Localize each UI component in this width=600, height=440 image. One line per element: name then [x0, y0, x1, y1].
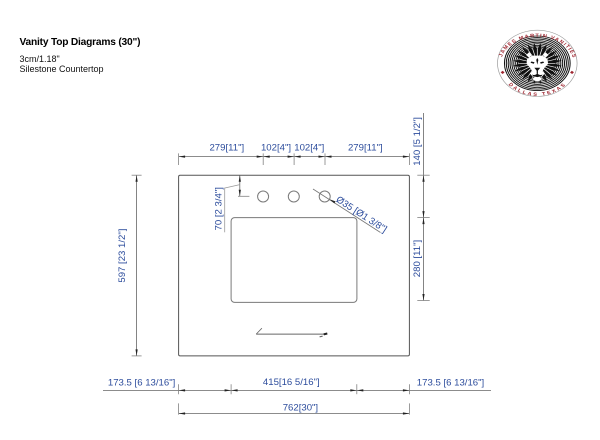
svg-text:762[30"]: 762[30"]	[283, 403, 318, 414]
svg-text:70 [2 3/4"]: 70 [2 3/4"]	[214, 187, 225, 230]
svg-text:597 [23 1/2"]: 597 [23 1/2"]	[117, 229, 128, 283]
svg-text:280 [11"]: 280 [11"]	[412, 240, 423, 277]
svg-text:279[11"]: 279[11"]	[209, 143, 244, 154]
svg-text:3cm/1.18": 3cm/1.18"	[20, 54, 60, 64]
svg-text:415[16 5/16"]: 415[16 5/16"]	[263, 377, 320, 388]
svg-text:Vanity Top Diagrams (30"): Vanity Top Diagrams (30")	[20, 37, 141, 48]
svg-text:Silestone Countertop: Silestone Countertop	[20, 64, 104, 74]
svg-text:279[11"]: 279[11"]	[348, 143, 383, 154]
svg-text:102[4"]: 102[4"]	[261, 143, 291, 154]
svg-text:Ø35 [Ø1 3/8"]: Ø35 [Ø1 3/8"]	[334, 194, 389, 235]
svg-text:140 [5 1/2"]: 140 [5 1/2"]	[412, 117, 423, 166]
svg-text:173.5 [6 13/16"]: 173.5 [6 13/16"]	[417, 377, 484, 388]
svg-text:102[4"]: 102[4"]	[294, 143, 324, 154]
svg-text:173.5 [6 13/16"]: 173.5 [6 13/16"]	[108, 377, 175, 388]
